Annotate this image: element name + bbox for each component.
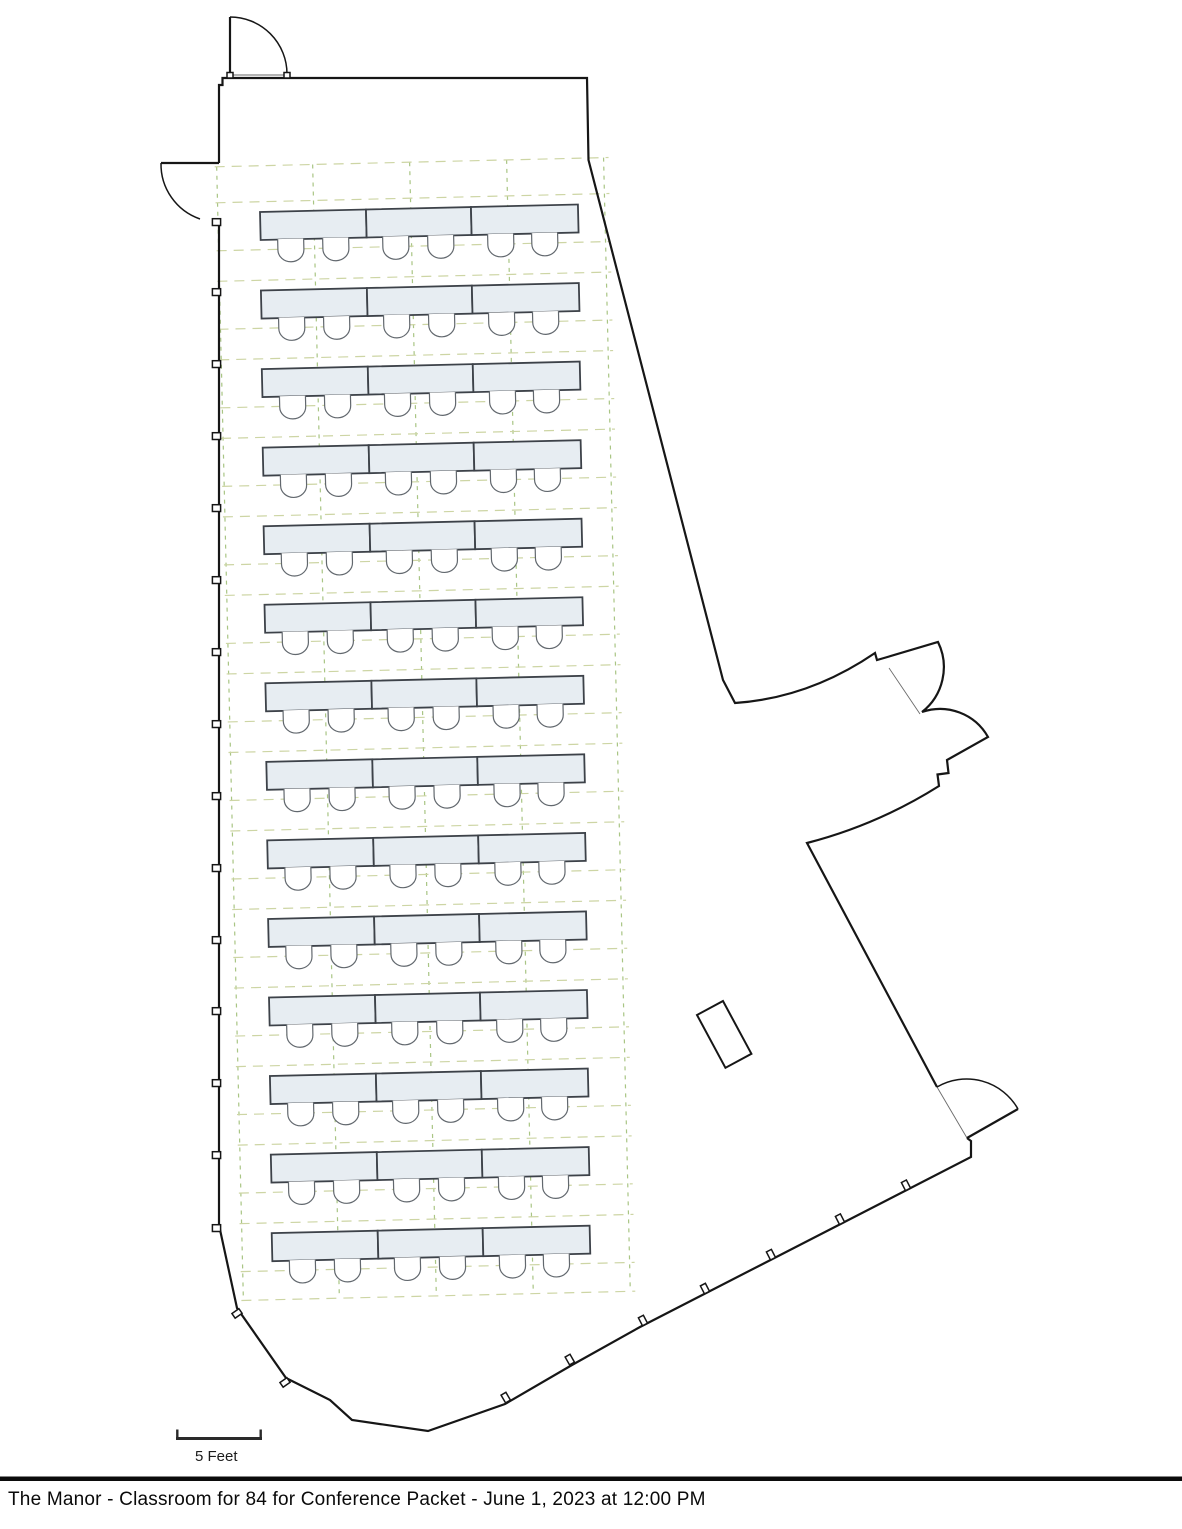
top-door-jamb-left [227, 73, 233, 79]
chair [536, 625, 563, 649]
table [367, 286, 473, 316]
table [262, 367, 369, 397]
wall-tick [212, 937, 220, 944]
table [370, 521, 476, 551]
table [260, 210, 367, 240]
chair [333, 1180, 360, 1204]
chair [287, 1024, 314, 1048]
chair [532, 311, 559, 335]
chair [497, 1098, 524, 1122]
table [478, 833, 586, 864]
chair [495, 862, 522, 886]
chair [278, 238, 305, 262]
seating-row [263, 440, 582, 498]
chair [538, 782, 565, 806]
wall-tick [212, 865, 220, 872]
chair [323, 237, 350, 261]
wall-tick [212, 577, 220, 584]
table [366, 207, 472, 237]
chair [279, 396, 306, 420]
chair [432, 628, 459, 652]
chair [491, 548, 518, 572]
table [375, 993, 481, 1023]
chair [388, 707, 415, 731]
wall-tick [212, 289, 220, 296]
chair [498, 1176, 525, 1200]
chair [280, 474, 307, 498]
chair [488, 312, 515, 336]
chair [435, 863, 462, 887]
chair [391, 943, 418, 967]
chair [328, 709, 355, 733]
chair [279, 317, 306, 341]
chair [532, 232, 559, 256]
chair [387, 629, 414, 653]
chair [390, 864, 417, 888]
chair [439, 1256, 466, 1280]
wall-tick [212, 219, 220, 226]
layout-grid [215, 158, 636, 1301]
table [371, 678, 477, 708]
top-door-swing-arc [230, 17, 287, 74]
table [372, 757, 478, 787]
chair [285, 867, 312, 891]
wall-tick [212, 649, 220, 656]
table [264, 524, 371, 554]
wall-tick [212, 433, 220, 440]
chair [436, 942, 463, 966]
chair [437, 1020, 464, 1044]
chair [327, 630, 354, 654]
table [261, 288, 368, 318]
chair [326, 552, 353, 576]
table [368, 364, 474, 394]
chair [389, 786, 416, 810]
seating-row [262, 362, 581, 420]
scale-bar: 5 Feet [176, 1430, 262, 1466]
wall-tick [212, 1008, 220, 1015]
chair [383, 236, 410, 260]
chair [542, 1175, 569, 1199]
wall-tick [232, 1309, 242, 1318]
chair [384, 393, 411, 417]
chair [334, 1259, 361, 1283]
wall-tick [212, 505, 220, 512]
floor-plan-page: 5 Feet The Manor - Classroom for 84 for … [0, 0, 1182, 1529]
table [370, 600, 476, 630]
table [369, 443, 475, 473]
footer-divider [0, 1477, 1182, 1482]
chair [286, 945, 313, 969]
chair [541, 1018, 568, 1042]
table [263, 445, 370, 475]
table [473, 362, 581, 393]
chair [289, 1260, 316, 1284]
table [483, 1226, 591, 1257]
table [471, 205, 579, 236]
chair [329, 787, 356, 811]
table [376, 1071, 482, 1101]
chair [533, 390, 560, 414]
table [268, 916, 375, 946]
chair [492, 626, 519, 650]
chair [429, 392, 456, 416]
wall-tick [212, 361, 220, 368]
table [378, 1228, 484, 1258]
wall-tick [212, 1152, 220, 1159]
table [476, 676, 584, 707]
chair [330, 866, 357, 890]
chair [392, 1022, 419, 1046]
chair [434, 785, 461, 809]
wall-tick [766, 1249, 775, 1260]
chair [497, 1019, 524, 1043]
table [272, 1231, 379, 1261]
table [374, 914, 480, 944]
chair [540, 939, 567, 963]
chair [283, 710, 310, 734]
chair [535, 547, 562, 571]
chair [331, 944, 358, 968]
seating-row [270, 1069, 589, 1127]
chair [499, 1255, 526, 1279]
chair [281, 553, 308, 577]
chair [332, 1023, 359, 1047]
wall-tick [212, 793, 220, 800]
left-door-swing-arc [161, 163, 200, 219]
chair [288, 1181, 315, 1205]
seating-row [260, 205, 579, 263]
table [266, 759, 373, 789]
chair [431, 549, 458, 573]
chair [384, 315, 411, 339]
wall-tick [280, 1378, 290, 1387]
wall-tick [212, 1225, 220, 1232]
chair [539, 861, 566, 885]
chair [438, 1178, 465, 1202]
seating-rows [260, 205, 591, 1284]
table [475, 519, 583, 550]
floor-plan-drawing: 5 Feet The Manor - Classroom for 84 for … [0, 0, 1182, 1529]
seating-row [265, 597, 584, 655]
seating-row [268, 911, 587, 969]
chair [489, 391, 516, 415]
chair [494, 783, 521, 807]
chair [288, 1103, 315, 1127]
chair [537, 704, 564, 728]
table [474, 440, 582, 471]
page-title: The Manor - Classroom for 84 for Confere… [8, 1489, 706, 1510]
wall-tick [700, 1283, 709, 1294]
table [377, 1150, 483, 1180]
chair [394, 1257, 421, 1281]
bottom-door-leaf [967, 1109, 1018, 1138]
chair [534, 468, 561, 492]
table [477, 754, 585, 785]
table [269, 995, 376, 1025]
chair [325, 473, 352, 497]
chair [324, 395, 351, 419]
chair [393, 1179, 420, 1203]
table [265, 681, 372, 711]
bottom-door-swing-arc [937, 1079, 1018, 1109]
table [267, 838, 374, 868]
wall-tick [212, 1080, 220, 1087]
chair [490, 469, 517, 493]
table [373, 835, 479, 865]
table [479, 911, 587, 942]
scale-bar-label: 5 Feet [195, 1448, 238, 1465]
chair [430, 471, 457, 495]
chair [324, 316, 351, 340]
seating-row [266, 754, 585, 812]
chair [429, 313, 456, 337]
chair [386, 550, 413, 574]
table [475, 597, 583, 628]
seating-row [265, 676, 584, 734]
chair [428, 235, 455, 259]
chair [488, 234, 515, 258]
wall-tick [638, 1315, 647, 1326]
wall-tick [565, 1354, 574, 1365]
seating-row [261, 283, 580, 341]
chair [433, 706, 460, 730]
table [481, 1069, 589, 1100]
chair [393, 1100, 420, 1124]
table [271, 1152, 378, 1182]
vestibule-door-opening-line [889, 668, 920, 714]
seating-row [264, 519, 583, 577]
chair [333, 1101, 360, 1125]
seating-row [269, 990, 588, 1048]
chair [493, 705, 520, 729]
chair [284, 788, 311, 812]
chair [385, 472, 412, 496]
top-door-jamb-right [284, 73, 290, 79]
chair [543, 1254, 570, 1278]
wall-tick [835, 1214, 844, 1225]
seating-row [272, 1226, 591, 1284]
table [472, 283, 580, 314]
chair [438, 1099, 465, 1123]
seating-row [271, 1147, 590, 1205]
chair [496, 940, 523, 964]
table [480, 990, 588, 1021]
chair [541, 1097, 568, 1121]
table [265, 602, 372, 632]
table [270, 1074, 377, 1104]
wall-tick [501, 1392, 510, 1403]
table [482, 1147, 590, 1178]
podium [697, 1001, 751, 1068]
wall-tick [901, 1180, 910, 1191]
chair [282, 631, 309, 655]
bottom-door-opening-line [937, 1087, 967, 1138]
wall-tick [212, 721, 220, 728]
